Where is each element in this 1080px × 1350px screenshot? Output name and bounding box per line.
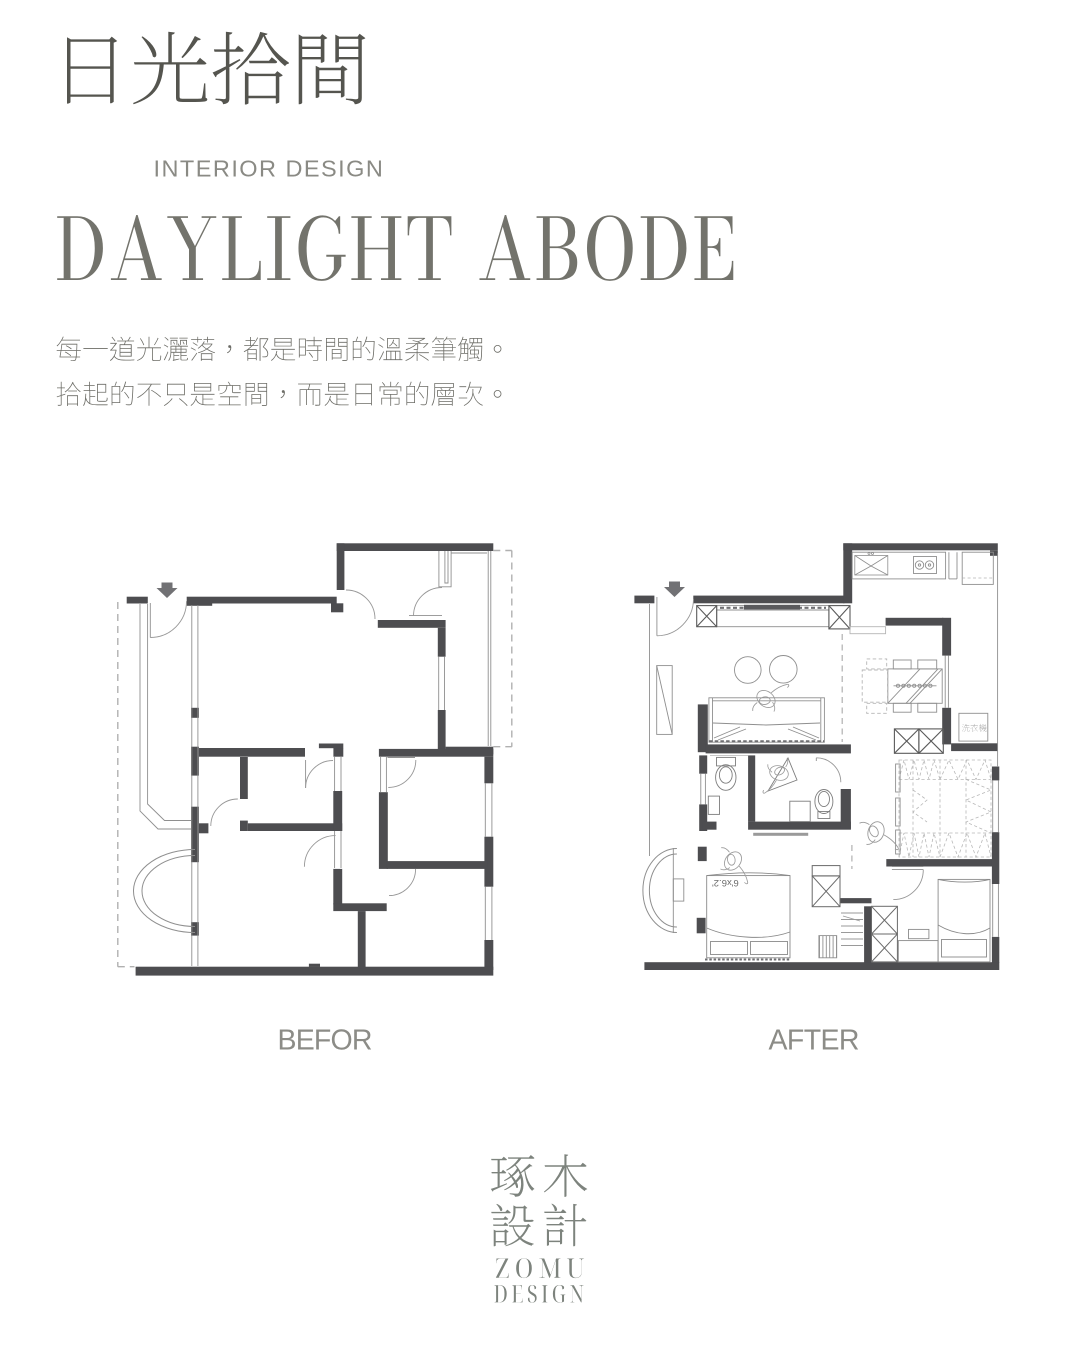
svg-text:INTERIOR DESIGN: INTERIOR DESIGN xyxy=(154,156,386,182)
svg-text:BEFOR: BEFOR xyxy=(278,1025,377,1057)
svg-text:6'x6.2': 6'x6.2' xyxy=(712,877,739,888)
svg-text:AFTER: AFTER xyxy=(769,1025,864,1057)
